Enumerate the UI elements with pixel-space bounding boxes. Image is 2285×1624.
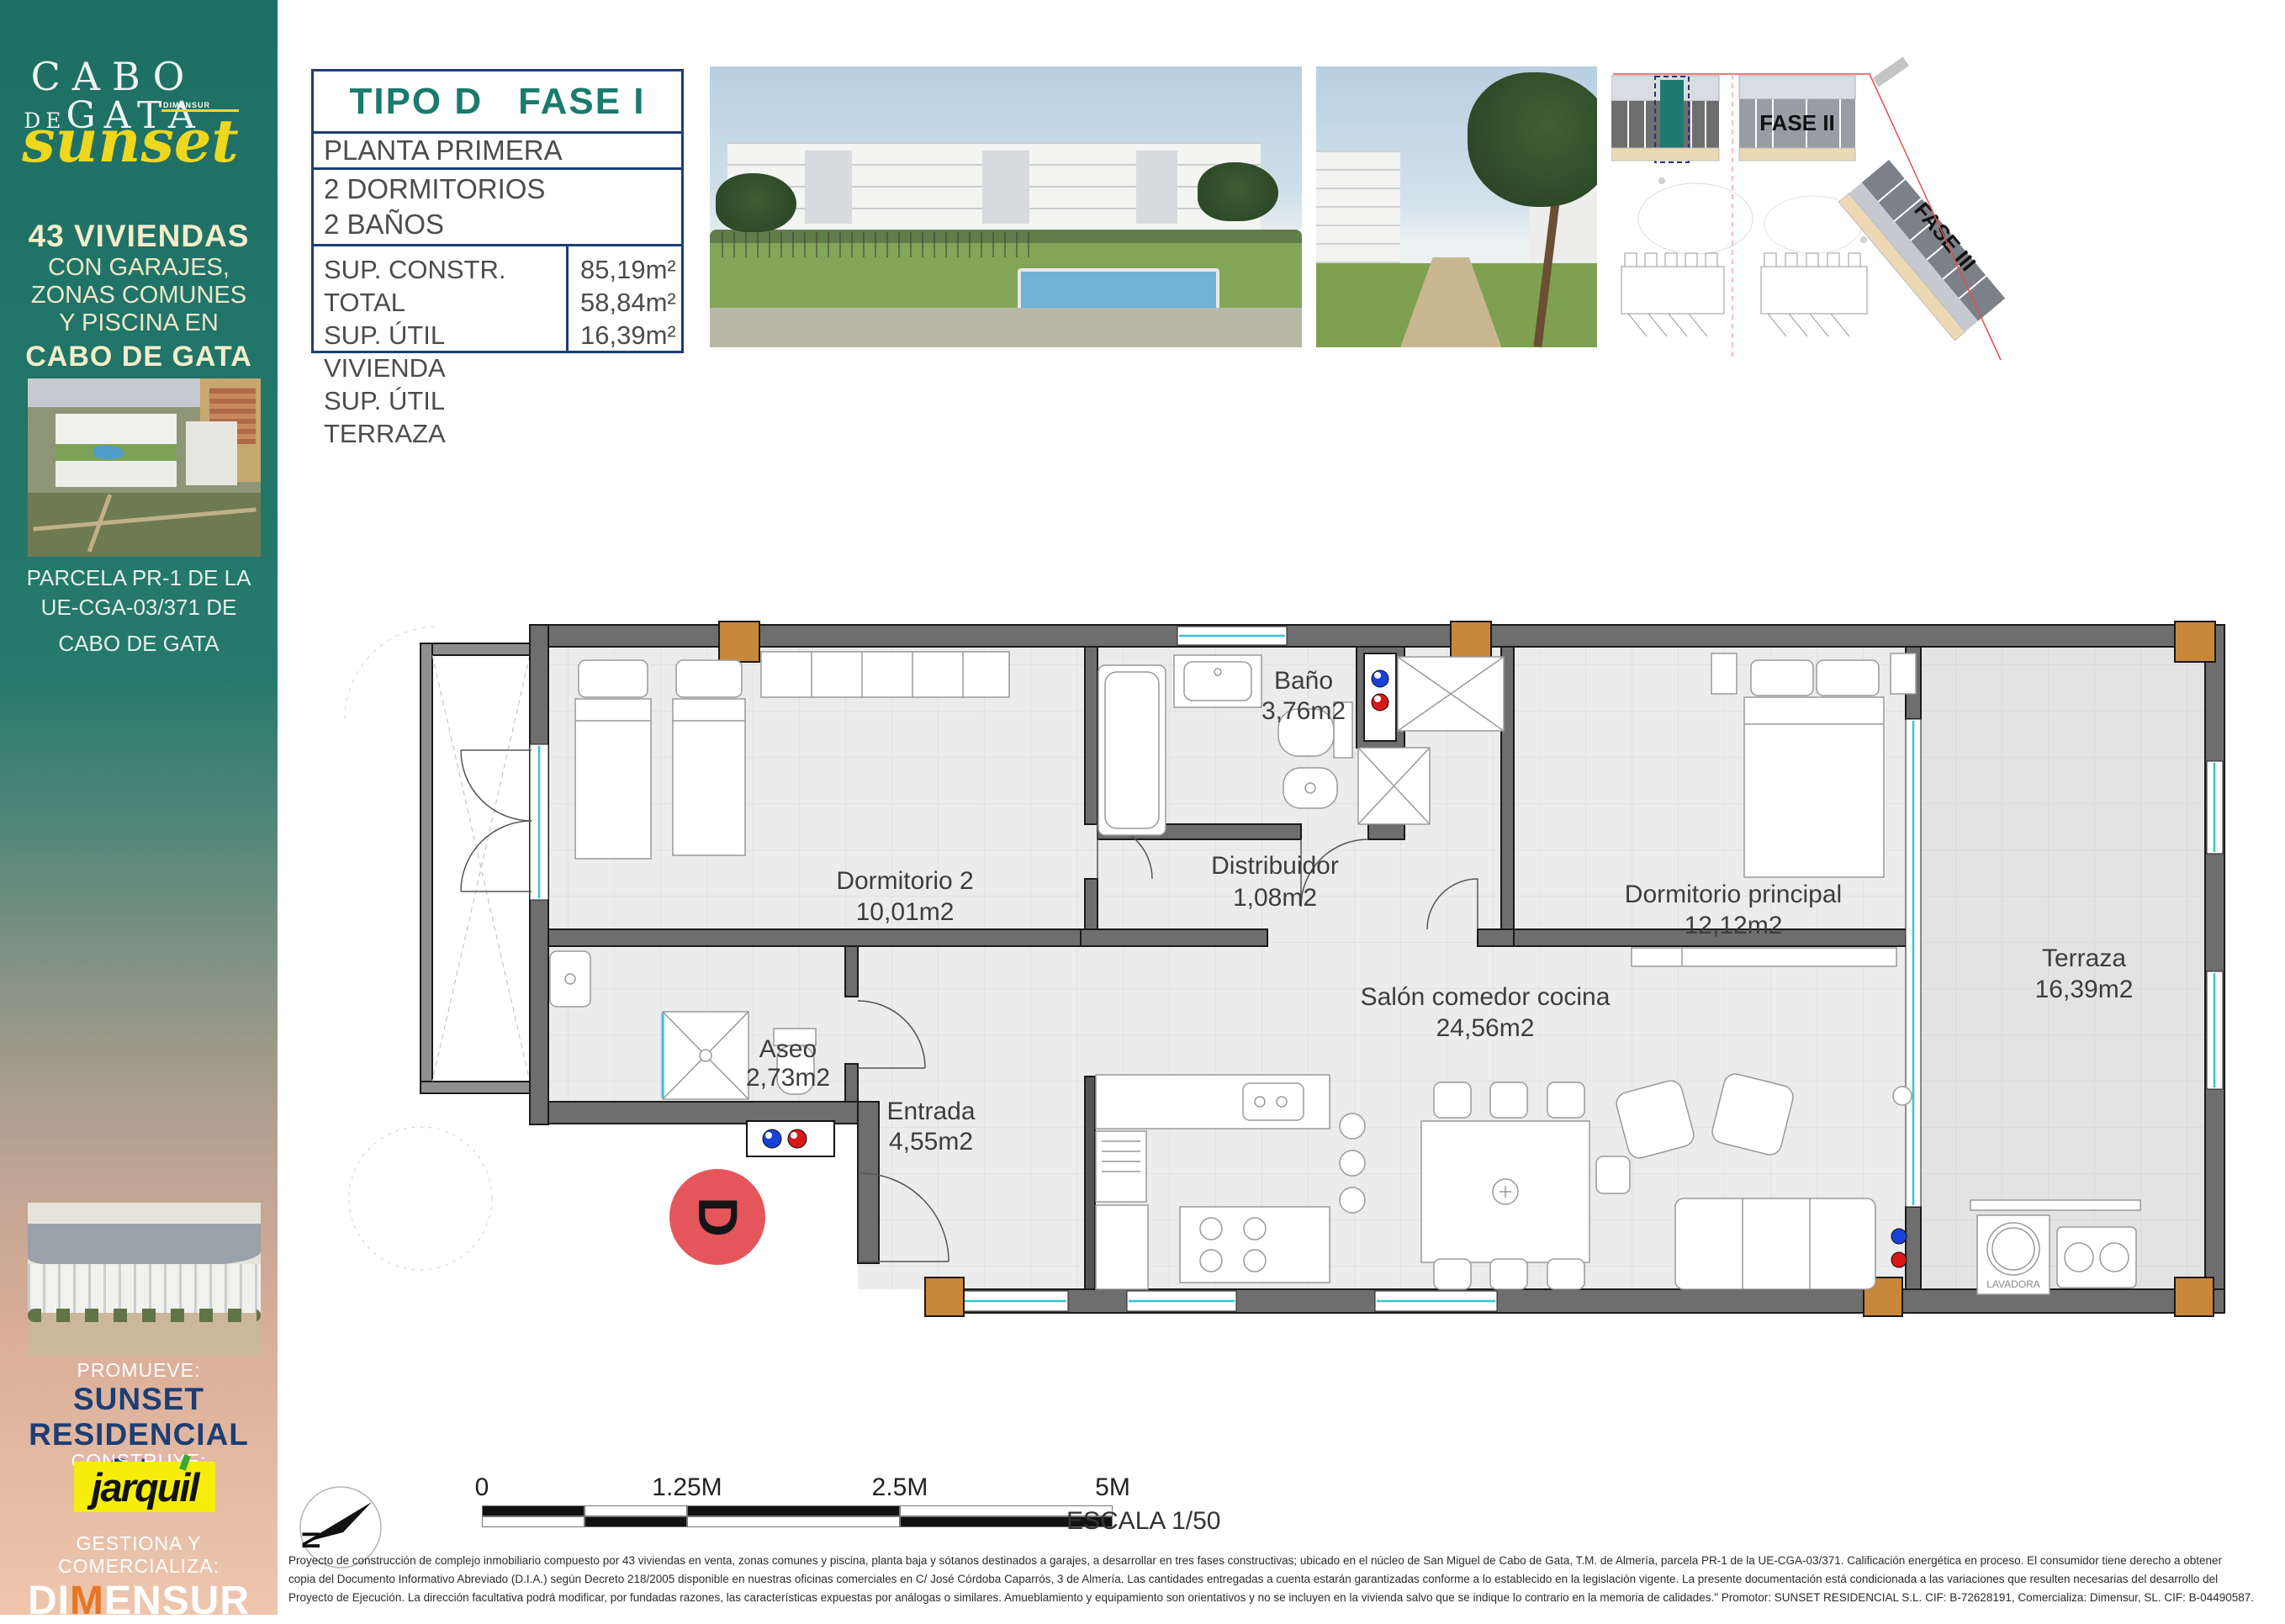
dimensur-di: DI (28, 1579, 70, 1623)
floor-label: PLANTA PRIMERA (314, 134, 681, 170)
north-letter: N (298, 1531, 325, 1549)
unit-badge: D (669, 1169, 765, 1265)
aerial-photo (28, 378, 261, 557)
unit-phase-label: FASE I (518, 81, 645, 123)
bedrooms-count: 2 DORMITORIOS (324, 173, 681, 205)
scale-tick-125: 1.25M (637, 1473, 738, 1502)
palm-tree (716, 173, 796, 232)
dimensur-ensur: ENSUR (104, 1579, 250, 1623)
jarquil-wordmark: jarquil (91, 1464, 198, 1510)
jarquil-part-i: i (179, 1465, 188, 1510)
aerial-pool (93, 446, 124, 460)
scale-tick-0: 0 (431, 1473, 532, 1502)
building-a-terraces (1611, 148, 1719, 161)
render1-recess (1136, 151, 1177, 224)
headline-block: 43 VIVIENDAS CON GARAJES, ZONAS COMUNES … (0, 219, 278, 373)
headline-location: CABO DE GATA (0, 341, 278, 373)
room-area: 3,76m2 (1262, 697, 1346, 725)
aerial-building-row2 (56, 461, 177, 488)
washer-label: LAVADORA (1986, 1278, 2040, 1290)
render1-recess (805, 151, 852, 224)
room-area: 10,01m2 (856, 898, 955, 926)
town-scrub (28, 1309, 261, 1322)
highlighted-unit (1660, 80, 1684, 159)
town-photo (28, 1203, 261, 1356)
headline-line2: CON GARAJES, (0, 254, 278, 282)
sidebar: CABO DEGATA DIMENSUR sunset 43 VIVIENDAS… (0, 0, 278, 1615)
crosswalk-mark (1873, 56, 1909, 87)
unit-type-label: TIPO D (349, 81, 483, 123)
room-label: Salón comedor cocina (1361, 983, 1611, 1011)
town-buildings (28, 1264, 261, 1313)
rooms-summary: 2 DORMITORIOS 2 BAÑOS (314, 170, 681, 246)
room-area: 24,56m2 (1436, 1014, 1535, 1042)
patio (421, 643, 532, 1093)
fase2-label: FASE II (1759, 110, 1835, 135)
scale-tick-5: 5M (1062, 1473, 1163, 1502)
tree-mark (1658, 177, 1665, 184)
dimensur-m: M (70, 1579, 104, 1623)
brand-logo: CABO (0, 54, 227, 99)
room-area: 4,55m2 (889, 1128, 973, 1156)
floor-plan: D Baño 3,76m2 Distribuidor 1,08m2 Dormit… (336, 618, 2279, 1358)
disclaimer-line3: Proyecto de Ejecución. La dirección facu… (288, 1591, 2282, 1604)
headline-line4: Y PISCINA EN (0, 309, 278, 337)
room-label: Dormitorio 2 (836, 867, 973, 895)
area-row-label: SUP. CONSTR. TOTAL (324, 253, 566, 319)
jarquil-logo: jarquil (74, 1462, 215, 1512)
room-label: Dormitorio principal (1625, 881, 1842, 908)
unit-info-box: TIPO D FASE I PLANTA PRIMERA 2 DORMITORI… (311, 69, 684, 353)
jarquil-part-a: jarqu (91, 1465, 179, 1510)
brand-sunset: sunset (0, 106, 261, 176)
pool-outline (1638, 183, 1753, 254)
area-row-value: 85,19m² (580, 253, 681, 286)
aerial-building-side (186, 421, 237, 485)
area-row-value: 58,84m² (580, 286, 681, 319)
promoter-name-line1: SUNSET (0, 1382, 278, 1417)
render-photo-pool (710, 66, 1302, 347)
render2-building-left (1316, 151, 1400, 268)
service-shaft (1364, 653, 1396, 741)
room-label: Distribuidor (1211, 852, 1339, 880)
site-plan: FASE II FASE III (1611, 46, 2284, 362)
promueve-label: PROMUEVE: (0, 1359, 278, 1382)
siteplan-building-c-outline (1621, 253, 1724, 336)
render1-recess (982, 151, 1029, 224)
unit-badge-letter: D (687, 1197, 749, 1237)
area-row-label: SUP. ÚTIL TERRAZA (324, 384, 566, 450)
gestiona-label: GESTIONA Y COMERCIALIZA: (0, 1532, 278, 1578)
parcel-text: PARCELA PR-1 DE LA UE-CGA-03/371 DE CABO… (0, 563, 278, 659)
scale-label: ESCALA 1/50 (1066, 1507, 1220, 1536)
aerial-building-row1 (56, 414, 177, 446)
dimensur-wordmark: DIMENSUR (0, 1578, 278, 1624)
context-circle (349, 1127, 492, 1270)
areas-values-column: 85,19m² 58,84m² 16,39m² (566, 246, 681, 353)
render1-pool (1018, 268, 1219, 311)
headline-units: 43 VIVIENDAS (0, 219, 278, 254)
entry-supply-box (747, 1121, 834, 1156)
areas-labels-column: SUP. CONSTR. TOTAL SUP. ÚTIL VIVIENDA SU… (314, 246, 566, 353)
scale-bar (482, 1505, 1113, 1527)
render1-path (710, 308, 1302, 347)
bathrooms-count: 2 BAÑOS (324, 209, 681, 241)
town-hills (28, 1224, 261, 1267)
palm-tree (1468, 72, 1597, 207)
parcel-line1: PARCELA PR-1 DE LA (0, 563, 278, 593)
scale-tick-25: 2.5M (849, 1473, 950, 1502)
jarquil-part-l: l (188, 1465, 198, 1510)
room-area: 16,39m2 (2035, 976, 2134, 1003)
unit-title-row: TIPO D FASE I (314, 71, 681, 134)
siteplan-building-a (1611, 76, 1719, 162)
room-label: Entrada (886, 1098, 975, 1125)
siteplan-building-d-outline (1761, 253, 1867, 336)
disclaimer-line1: Proyecto de construcción de complejo inm… (288, 1554, 2282, 1567)
palm-tree (1198, 162, 1278, 221)
agency-block: GESTIONA Y COMERCIALIZA: DIMENSUR (0, 1532, 278, 1624)
room-label: Aseo (759, 1035, 817, 1063)
room-area: 1,08m2 (1233, 884, 1317, 912)
render-photo-garden (1316, 66, 1597, 347)
render1-fence (722, 232, 1029, 257)
room-area: 2,73m2 (746, 1064, 830, 1092)
room-area: 12,12m2 (1685, 912, 1783, 939)
area-row-label: SUP. ÚTIL VIVIENDA (324, 319, 566, 384)
building-b-terraces (1739, 148, 1855, 161)
room-label: Baño (1274, 667, 1333, 695)
area-row-value: 16,39m² (580, 319, 681, 352)
headline-line3: ZONAS COMUNES (0, 282, 278, 309)
room-label: Terraza (2042, 944, 2126, 972)
areas-table: SUP. CONSTR. TOTAL SUP. ÚTIL VIVIENDA SU… (314, 246, 681, 353)
parcel-line3: CABO DE GATA (0, 629, 278, 659)
disclaimer-line2: copia del Documento Informativo Abreviad… (288, 1573, 2282, 1585)
siteplan-building-b: FASE II (1739, 76, 1855, 161)
building-b-roof (1739, 76, 1855, 99)
parcel-line2: UE-CGA-03/371 DE (0, 593, 278, 622)
tree-mark (1860, 236, 1867, 243)
